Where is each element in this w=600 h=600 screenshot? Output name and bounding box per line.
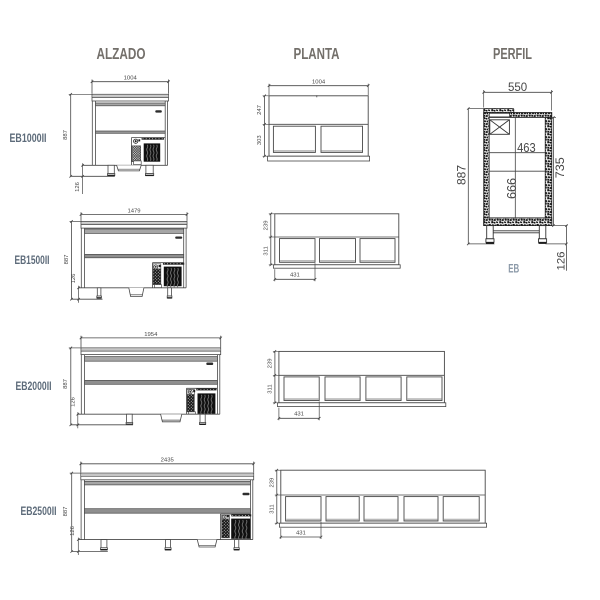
svg-text:EB2000II: EB2000II [16,381,52,393]
svg-text:126: 126 [71,273,77,284]
svg-text:126: 126 [70,525,76,536]
svg-text:311: 311 [263,246,269,255]
svg-text:887: 887 [63,507,69,517]
svg-text:463: 463 [517,140,536,155]
svg-text:431: 431 [294,412,304,418]
svg-text:311: 311 [269,504,275,513]
svg-text:1004: 1004 [124,76,138,82]
svg-text:311: 311 [268,384,274,393]
svg-text:735: 735 [555,157,567,178]
svg-text:126: 126 [75,181,81,192]
svg-text:239: 239 [269,478,275,488]
svg-text:887: 887 [63,379,69,389]
svg-text:ALZADO: ALZADO [97,46,146,63]
svg-text:887: 887 [457,165,469,185]
svg-text:EB1500II: EB1500II [15,255,50,267]
svg-text:EB1000II: EB1000II [10,133,47,145]
svg-text:247: 247 [257,105,263,115]
svg-text:550: 550 [508,82,527,94]
svg-text:EB: EB [508,262,519,276]
svg-text:PLANTA: PLANTA [294,46,340,63]
svg-text:PERFIL: PERFIL [493,46,532,63]
svg-text:431: 431 [290,273,300,279]
svg-text:666: 666 [504,178,519,199]
svg-text:887: 887 [63,130,69,140]
svg-text:887: 887 [64,255,70,265]
svg-text:1479: 1479 [127,208,140,214]
svg-text:126: 126 [70,396,76,407]
svg-text:1004: 1004 [312,79,326,85]
svg-text:303: 303 [257,135,263,146]
svg-text:1954: 1954 [144,332,158,338]
svg-text:2435: 2435 [161,458,175,464]
svg-text:431: 431 [296,530,306,536]
svg-text:126: 126 [556,252,568,271]
svg-text:239: 239 [268,358,274,368]
svg-text:EB2500II: EB2500II [21,506,57,518]
svg-text:239: 239 [263,220,269,230]
